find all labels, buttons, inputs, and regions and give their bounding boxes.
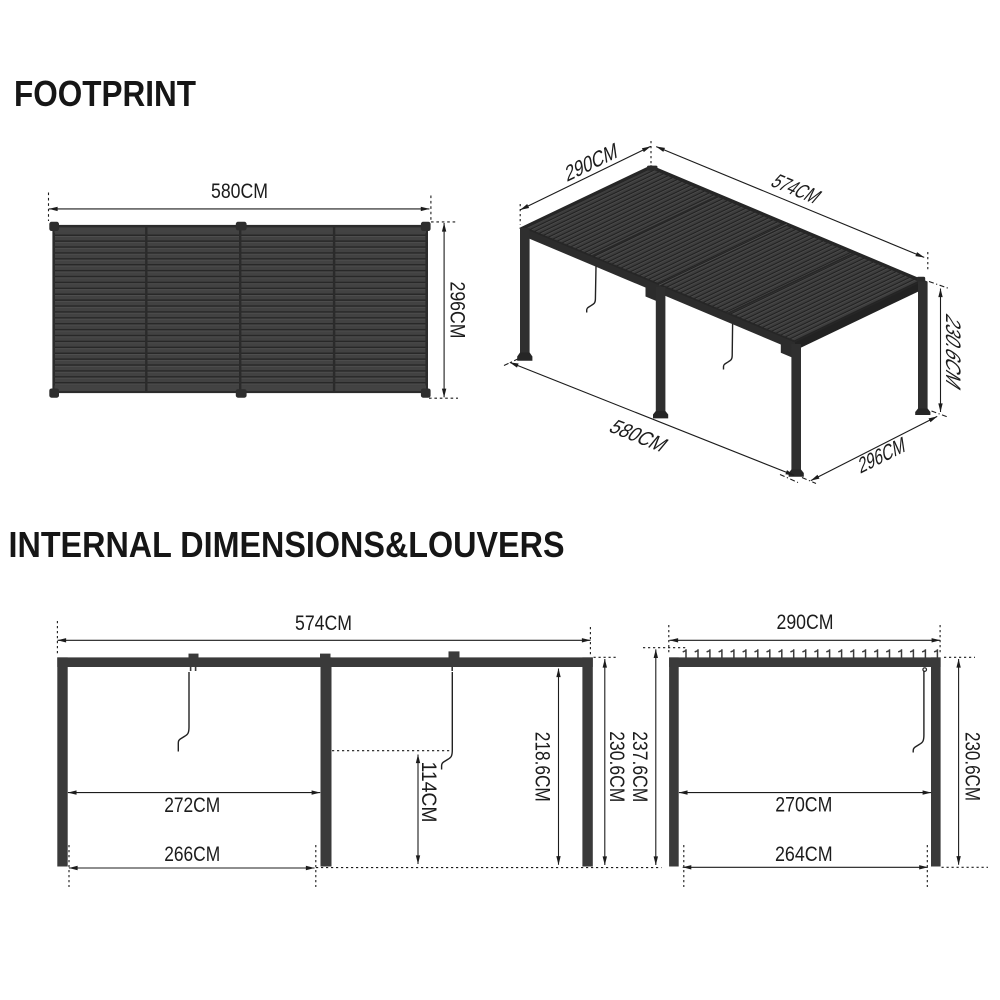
svg-text:574CM: 574CM	[295, 612, 352, 635]
svg-text:264CM: 264CM	[775, 843, 833, 866]
svg-text:272CM: 272CM	[164, 794, 220, 817]
svg-text:218.6CM: 218.6CM	[530, 732, 553, 802]
svg-text:114CM: 114CM	[417, 762, 440, 823]
svg-text:580CM: 580CM	[211, 180, 268, 203]
svg-text:290CM: 290CM	[777, 611, 834, 634]
svg-text:230.6CM: 230.6CM	[605, 731, 628, 802]
svg-text:580CM: 580CM	[604, 416, 673, 456]
svg-text:574CM: 574CM	[766, 171, 826, 208]
svg-text:290CM: 290CM	[564, 138, 619, 187]
svg-text:INTERNAL DIMENSIONS&LOUVERS: INTERNAL DIMENSIONS&LOUVERS	[9, 524, 565, 565]
svg-text:230.6CM: 230.6CM	[960, 732, 983, 801]
svg-text:230.6CM: 230.6CM	[941, 310, 965, 395]
svg-text:FOOTPRINT: FOOTPRINT	[14, 73, 196, 114]
svg-text:237.6CM: 237.6CM	[628, 731, 651, 802]
svg-text:270CM: 270CM	[775, 794, 832, 817]
svg-text:296CM: 296CM	[857, 432, 906, 479]
svg-text:266CM: 266CM	[164, 843, 220, 866]
svg-text:296CM: 296CM	[446, 282, 469, 339]
